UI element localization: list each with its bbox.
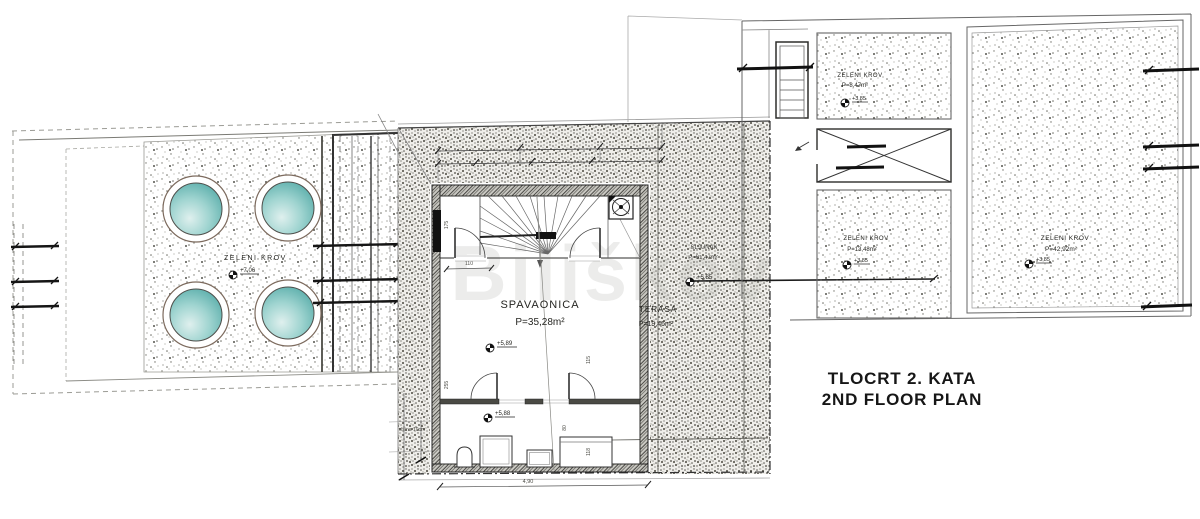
roof-dome-3 (163, 282, 229, 348)
roof-mid-area: P=13,48m² (847, 247, 877, 253)
roof-dome-2 (255, 175, 321, 241)
partition-wall (440, 399, 640, 404)
terrace-label: TERASA (639, 305, 677, 314)
roof-mid-label: ZELENI KROV (843, 236, 888, 242)
wall-right (640, 185, 648, 472)
roof-dome-1 (163, 176, 229, 242)
right-wing: ZELENI KROV P=8,47m² +3,85 ZELENI KROV P… (737, 14, 1199, 320)
left-roof-label: ZELENI KROV (224, 255, 287, 262)
floor-plan-drawing: ZELENI KROV +7,06 (0, 0, 1200, 519)
elevation-marker (486, 344, 494, 352)
gravel-label: ŠLJUNAK (690, 244, 717, 251)
skylight-x-panel (795, 129, 951, 182)
elevation-marker (484, 414, 492, 422)
dim-width-bottom: 4,90 (523, 479, 534, 485)
watermark: Biliškov (450, 229, 773, 317)
elevation-marker (841, 99, 849, 107)
roof-small-label: ZELENI KROV (837, 73, 882, 79)
elevation-marker (686, 278, 694, 286)
wall-opening-panel (433, 210, 441, 252)
left-wing-roof: ZELENI KROV +7,06 (11, 121, 404, 394)
dim-115: 115 (586, 356, 592, 364)
dim-110: 110 (465, 261, 473, 267)
elevation-marker (1025, 260, 1033, 268)
roof-dome-4 (255, 280, 321, 346)
annotation-visina: visina 10cm (399, 427, 425, 433)
toilet-fixture (457, 447, 472, 467)
door-partition-right (569, 373, 595, 399)
plan-title-hr: TLOCRT 2. KATA (828, 369, 976, 388)
roof-large-label: ZELENI KROV (1041, 235, 1090, 242)
plan-title: TLOCRT 2. KATA 2ND FLOOR PLAN (822, 369, 982, 409)
green-roof-mid: ZELENI KROV P=13,48m² +3,85 (817, 190, 951, 318)
gravel-area: P=61,47m² (688, 255, 718, 261)
room-elevation-lower: +5,88 (495, 411, 511, 417)
room-elevation-upper: +5,89 (497, 341, 513, 347)
plan-title-en: 2ND FLOOR PLAN (822, 390, 982, 409)
stair-shaft (737, 42, 814, 118)
cabinet-box-1 (480, 436, 512, 467)
roof-large-elevation: +3,85 (1036, 257, 1050, 263)
elevation-marker (229, 271, 237, 279)
terrace-area: P=19,46m² (639, 321, 674, 328)
roof-large-area: P=42,92m² (1045, 246, 1078, 253)
dim-80: 80 (562, 425, 568, 431)
dim-255: 255 (444, 381, 450, 390)
green-roof-small: ZELENI KROV P=8,47m² +3,85 (817, 33, 951, 119)
roof-small-elevation: +3,85 (852, 96, 866, 102)
dim-118: 118 (586, 448, 592, 456)
dim-175: 175 (444, 221, 450, 230)
left-roof-elevation: +7,06 (240, 268, 256, 274)
roof-small-area: P=8,47m² (842, 83, 868, 89)
floor-plan-page: ZELENI KROV +7,06 (0, 0, 1200, 519)
roof-mid-elevation: +3,85 (854, 258, 868, 264)
elevation-marker (843, 261, 851, 269)
room-area: P=35,28m² (515, 317, 565, 328)
vent-symbol (609, 196, 633, 219)
door-partition-left (471, 373, 497, 399)
room-name: SPAVAONICA (500, 299, 579, 311)
wall-top (432, 185, 648, 196)
